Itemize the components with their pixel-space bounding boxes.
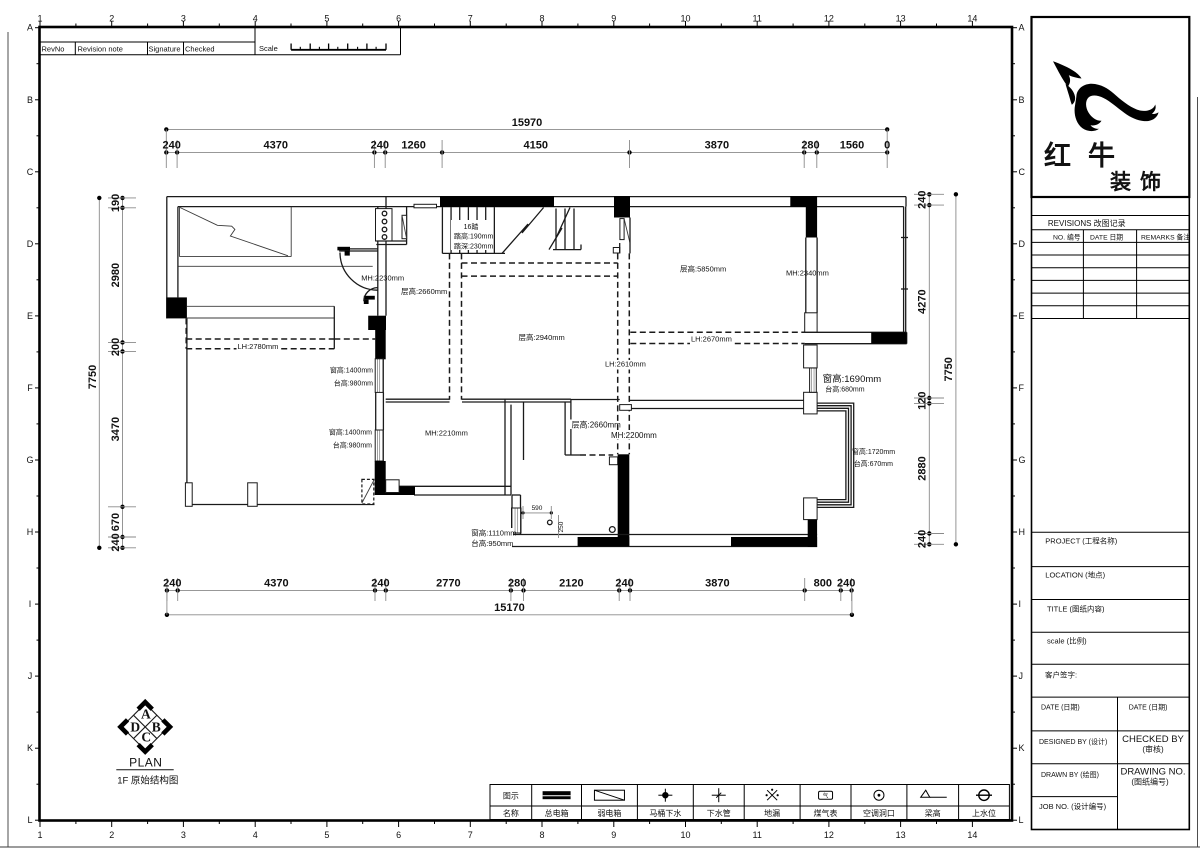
- svg-text:0: 0: [884, 140, 890, 152]
- svg-text:2980: 2980: [110, 263, 122, 287]
- svg-text:2120: 2120: [559, 578, 583, 590]
- svg-text:240: 240: [371, 140, 389, 152]
- svg-text:1260: 1260: [401, 140, 425, 152]
- svg-text:图示: 图示: [503, 792, 519, 801]
- svg-text:4370: 4370: [264, 140, 288, 152]
- svg-text:DATE (日期): DATE (日期): [1129, 704, 1168, 712]
- svg-text:层高:5850mm: 层高:5850mm: [680, 264, 726, 274]
- svg-text:12: 12: [824, 830, 834, 840]
- svg-text:LOCATION (地点): LOCATION (地点): [1045, 570, 1105, 580]
- svg-text:C: C: [141, 730, 151, 745]
- svg-text:窗高:1400mm: 窗高:1400mm: [329, 428, 372, 437]
- svg-text:E: E: [1019, 311, 1025, 321]
- svg-text:弱电箱: 弱电箱: [597, 808, 621, 818]
- svg-text:气: 气: [823, 792, 829, 800]
- svg-text:L: L: [1019, 815, 1024, 825]
- svg-text:D: D: [1019, 239, 1026, 249]
- svg-text:总电箱: 总电箱: [545, 808, 569, 818]
- svg-text:D: D: [27, 239, 34, 249]
- svg-text:1: 1: [37, 830, 42, 840]
- svg-text:240: 240: [110, 533, 122, 551]
- svg-text:2: 2: [109, 830, 114, 840]
- svg-text:800: 800: [814, 578, 832, 590]
- svg-text:J: J: [28, 671, 33, 681]
- svg-text:scale (比例): scale (比例): [1047, 636, 1087, 646]
- svg-text:DATE (日期): DATE (日期): [1041, 704, 1080, 712]
- svg-text:装饰: 装饰: [1110, 170, 1170, 194]
- svg-text:RevNo: RevNo: [42, 45, 65, 54]
- svg-text:REMARKS 备注: REMARKS 备注: [1141, 233, 1190, 242]
- svg-text:(图纸编号): (图纸编号): [1131, 777, 1169, 787]
- svg-text:G: G: [26, 455, 33, 465]
- svg-text:台高:950mm: 台高:950mm: [471, 538, 513, 548]
- svg-text:E: E: [27, 311, 33, 321]
- svg-text:Revision note: Revision note: [78, 45, 123, 54]
- svg-text:14: 14: [967, 830, 977, 840]
- svg-text:240: 240: [163, 140, 181, 152]
- svg-text:层高:2940mm: 层高:2940mm: [519, 332, 565, 342]
- svg-text:1560: 1560: [840, 140, 864, 152]
- svg-text:LH:2780mm: LH:2780mm: [238, 342, 279, 351]
- svg-text:15170: 15170: [494, 602, 525, 614]
- svg-text:LH:2670mm: LH:2670mm: [691, 335, 732, 344]
- svg-text:4370: 4370: [264, 578, 288, 590]
- svg-text:A: A: [141, 707, 151, 722]
- svg-text:K: K: [27, 743, 33, 753]
- svg-text:PLAN: PLAN: [129, 756, 162, 770]
- svg-text:窗高:1690mm: 窗高:1690mm: [823, 373, 882, 385]
- svg-text:190: 190: [110, 194, 122, 212]
- svg-text:红牛: 红牛: [1044, 140, 1132, 171]
- svg-text:9: 9: [611, 830, 616, 840]
- svg-text:MH:2210mm: MH:2210mm: [425, 429, 468, 438]
- svg-text:200: 200: [110, 338, 122, 356]
- svg-text:台高:980mm: 台高:980mm: [334, 379, 373, 388]
- svg-text:G: G: [1019, 455, 1026, 465]
- svg-text:D: D: [130, 720, 140, 735]
- svg-text:B: B: [1019, 95, 1025, 105]
- svg-text:空调洞口: 空调洞口: [863, 808, 895, 818]
- svg-text:JOB NO. (设计编号): JOB NO. (设计编号): [1039, 801, 1107, 811]
- svg-text:280: 280: [801, 140, 819, 152]
- svg-text:C: C: [27, 167, 34, 177]
- svg-text:240: 240: [917, 191, 929, 209]
- svg-text:DESIGNED BY (设计): DESIGNED BY (设计): [1039, 737, 1107, 746]
- svg-text:7750: 7750: [943, 357, 955, 381]
- svg-text:Scale: Scale: [259, 44, 278, 53]
- svg-text:上水位: 上水位: [972, 808, 996, 818]
- svg-text:DATE 日期: DATE 日期: [1090, 234, 1123, 242]
- svg-text:I: I: [1019, 599, 1022, 609]
- svg-text:F: F: [1019, 383, 1025, 393]
- svg-text:层高:2660mm: 层高:2660mm: [572, 420, 622, 430]
- svg-text:15970: 15970: [512, 117, 543, 129]
- svg-text:3870: 3870: [705, 578, 729, 590]
- svg-text:H: H: [27, 527, 34, 537]
- svg-text:踏高:190mm: 踏高:190mm: [454, 232, 493, 241]
- svg-text:240: 240: [837, 578, 855, 590]
- svg-text:4150: 4150: [524, 140, 548, 152]
- svg-text:LH:2610mm: LH:2610mm: [605, 360, 646, 369]
- svg-text:DRAWN BY (绘图): DRAWN BY (绘图): [1041, 770, 1099, 779]
- svg-text:Checked: Checked: [185, 45, 215, 54]
- svg-text:2880: 2880: [917, 456, 929, 480]
- svg-text:MH:2230mm: MH:2230mm: [361, 274, 404, 283]
- svg-text:5: 5: [324, 830, 329, 840]
- svg-text:240: 240: [917, 530, 929, 548]
- svg-text:C: C: [1019, 167, 1026, 177]
- svg-text:6: 6: [396, 830, 401, 840]
- svg-text:H: H: [1019, 527, 1026, 537]
- svg-text:CHECKED BY: CHECKED BY: [1122, 734, 1184, 745]
- svg-text:240: 240: [163, 578, 181, 590]
- svg-text:客户签字:: 客户签字:: [1045, 670, 1077, 680]
- svg-text:NO. 编号: NO. 编号: [1053, 233, 1081, 242]
- svg-text:13: 13: [896, 830, 906, 840]
- svg-text:590: 590: [532, 505, 543, 512]
- svg-text:TITLE (图纸内容): TITLE (图纸内容): [1047, 604, 1105, 614]
- svg-text:DRAWING NO.: DRAWING NO.: [1120, 767, 1185, 778]
- svg-text:MH:2340mm: MH:2340mm: [786, 269, 829, 278]
- svg-text:A: A: [1019, 23, 1025, 33]
- svg-text:B: B: [152, 720, 161, 735]
- svg-text:马桶下水: 马桶下水: [649, 808, 681, 818]
- svg-text:窗高:1110mm: 窗高:1110mm: [471, 528, 516, 538]
- svg-text:4: 4: [253, 830, 258, 840]
- svg-text:2770: 2770: [436, 578, 460, 590]
- svg-text:250: 250: [558, 521, 565, 532]
- svg-text:L: L: [27, 815, 32, 825]
- svg-text:10: 10: [680, 830, 690, 840]
- svg-text:280: 280: [508, 578, 526, 590]
- svg-text:MH:2200mm: MH:2200mm: [611, 431, 657, 440]
- svg-text:地漏: 地漏: [764, 808, 780, 818]
- svg-text:240: 240: [371, 578, 389, 590]
- svg-text:台高:680mm: 台高:680mm: [825, 385, 864, 394]
- svg-text:7: 7: [468, 830, 473, 840]
- svg-text:120: 120: [917, 392, 929, 410]
- svg-text:3: 3: [181, 830, 186, 840]
- svg-text:4270: 4270: [917, 289, 929, 313]
- svg-text:PROJECT (工程名称): PROJECT (工程名称): [1045, 536, 1117, 546]
- svg-text:窗高:1720mm: 窗高:1720mm: [852, 447, 895, 456]
- svg-text:煤气表: 煤气表: [814, 808, 838, 818]
- svg-text:16踏: 16踏: [464, 222, 479, 231]
- svg-text:3870: 3870: [705, 140, 729, 152]
- svg-text:REVISIONS 改图记录: REVISIONS 改图记录: [1048, 218, 1126, 228]
- svg-text:8: 8: [539, 830, 544, 840]
- svg-text:1F 原始结构图: 1F 原始结构图: [117, 775, 178, 787]
- svg-text:11: 11: [753, 830, 762, 840]
- svg-text:层高:2660mm: 层高:2660mm: [401, 286, 447, 296]
- svg-text:梁高: 梁高: [925, 808, 941, 818]
- svg-text:踏深:230mm: 踏深:230mm: [454, 242, 493, 251]
- svg-text:台高:980mm: 台高:980mm: [333, 441, 372, 450]
- svg-text:B: B: [27, 95, 33, 105]
- svg-text:Signature: Signature: [149, 45, 181, 54]
- svg-text:7750: 7750: [87, 365, 99, 389]
- svg-text:A: A: [27, 23, 33, 33]
- svg-text:240: 240: [615, 578, 633, 590]
- svg-text:J: J: [1019, 671, 1024, 681]
- svg-text:670: 670: [110, 513, 122, 531]
- svg-text:台高:670mm: 台高:670mm: [854, 459, 893, 468]
- svg-text:F: F: [27, 383, 33, 393]
- svg-text:下水管: 下水管: [707, 808, 731, 818]
- svg-text:窗高:1400mm: 窗高:1400mm: [330, 366, 373, 375]
- svg-text:(审核): (审核): [1142, 744, 1164, 754]
- svg-text:3470: 3470: [110, 417, 122, 441]
- svg-text:名称: 名称: [503, 808, 519, 818]
- svg-text:K: K: [1019, 743, 1025, 753]
- svg-text:I: I: [29, 599, 32, 609]
